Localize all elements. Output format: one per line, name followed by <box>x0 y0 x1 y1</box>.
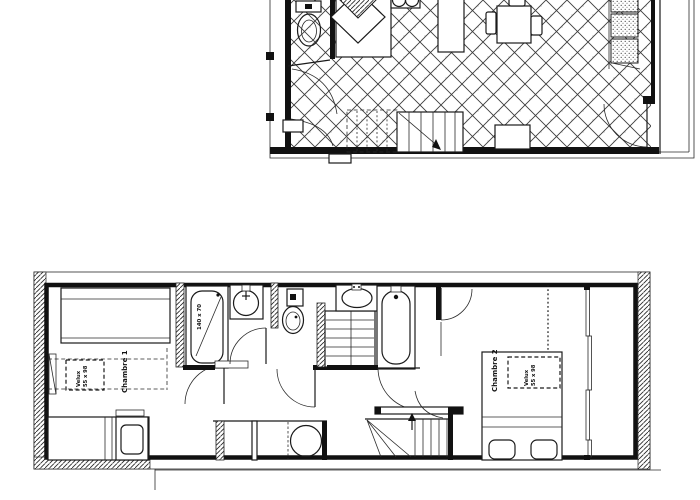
velux1-label-line1: Velux <box>76 370 82 387</box>
tub-step <box>215 361 248 368</box>
bathtub1-size-label: 140 x 70 <box>197 304 203 330</box>
bathtub-2 <box>377 286 415 369</box>
closet-wall <box>322 421 327 460</box>
floor-plan-drawing: Velux 55 x 98 Chambre 1 140 <box>0 0 700 500</box>
chair-top <box>509 0 525 6</box>
door-hinge-block <box>643 96 652 104</box>
bathroom1-east-wall <box>271 283 278 328</box>
sill-shelf <box>329 154 351 163</box>
floor-plan-page: Velux 55 x 98 Chambre 1 140 <box>0 0 700 500</box>
upper-right-wall-bottom <box>651 147 655 154</box>
wall-tick-2 <box>266 113 274 121</box>
velux1-label-line2: 55 x 98 <box>83 365 89 387</box>
sofa-units <box>609 0 640 69</box>
velux2-label-line2: 55 x 98 <box>531 364 537 386</box>
pillow-right <box>531 440 557 459</box>
stove-icon <box>391 0 420 8</box>
vanity-unit <box>48 410 149 460</box>
upper-corner-wall <box>270 147 286 154</box>
lower-floor-plan: Velux 55 x 98 Chambre 1 140 <box>34 272 661 490</box>
upper-bottom-wall <box>285 147 659 154</box>
washbasin-1 <box>230 285 263 319</box>
kitchen-counter-b <box>438 0 464 52</box>
closet-divider <box>252 421 257 460</box>
radiator <box>49 354 56 394</box>
chair-right <box>531 16 542 35</box>
bathroom1-wall <box>176 283 184 367</box>
bathroom2-south-wall <box>327 365 378 370</box>
hall-shelf <box>283 120 303 132</box>
chair-left <box>486 12 496 34</box>
bed-single <box>61 288 170 343</box>
chambre1-label: Chambre 1 <box>121 350 129 393</box>
bathtub-1 <box>186 286 228 368</box>
upper-floor-plan <box>266 0 694 163</box>
washbasin-2 <box>336 284 378 311</box>
pillow-left <box>489 440 515 459</box>
upper-right-wall-top <box>651 0 655 104</box>
vanity-basin <box>121 425 143 454</box>
wc-partition-wall <box>330 0 335 59</box>
right-wall-insulation <box>638 272 650 469</box>
vanity-shelf <box>116 410 144 416</box>
low-cabinet <box>495 125 530 149</box>
chambre2-label: Chambre 2 <box>491 349 499 392</box>
wall-tick-1 <box>266 52 274 60</box>
stair-landing-wall <box>448 407 453 460</box>
mid-staircase <box>317 303 375 367</box>
stair-wall <box>317 303 325 367</box>
chambre2-wall <box>436 283 441 320</box>
velux2-label-line1: Velux <box>524 369 530 386</box>
left-wall-insulation <box>34 272 46 469</box>
closet-post <box>216 421 224 460</box>
bathroom1-south-wall <box>183 365 215 370</box>
